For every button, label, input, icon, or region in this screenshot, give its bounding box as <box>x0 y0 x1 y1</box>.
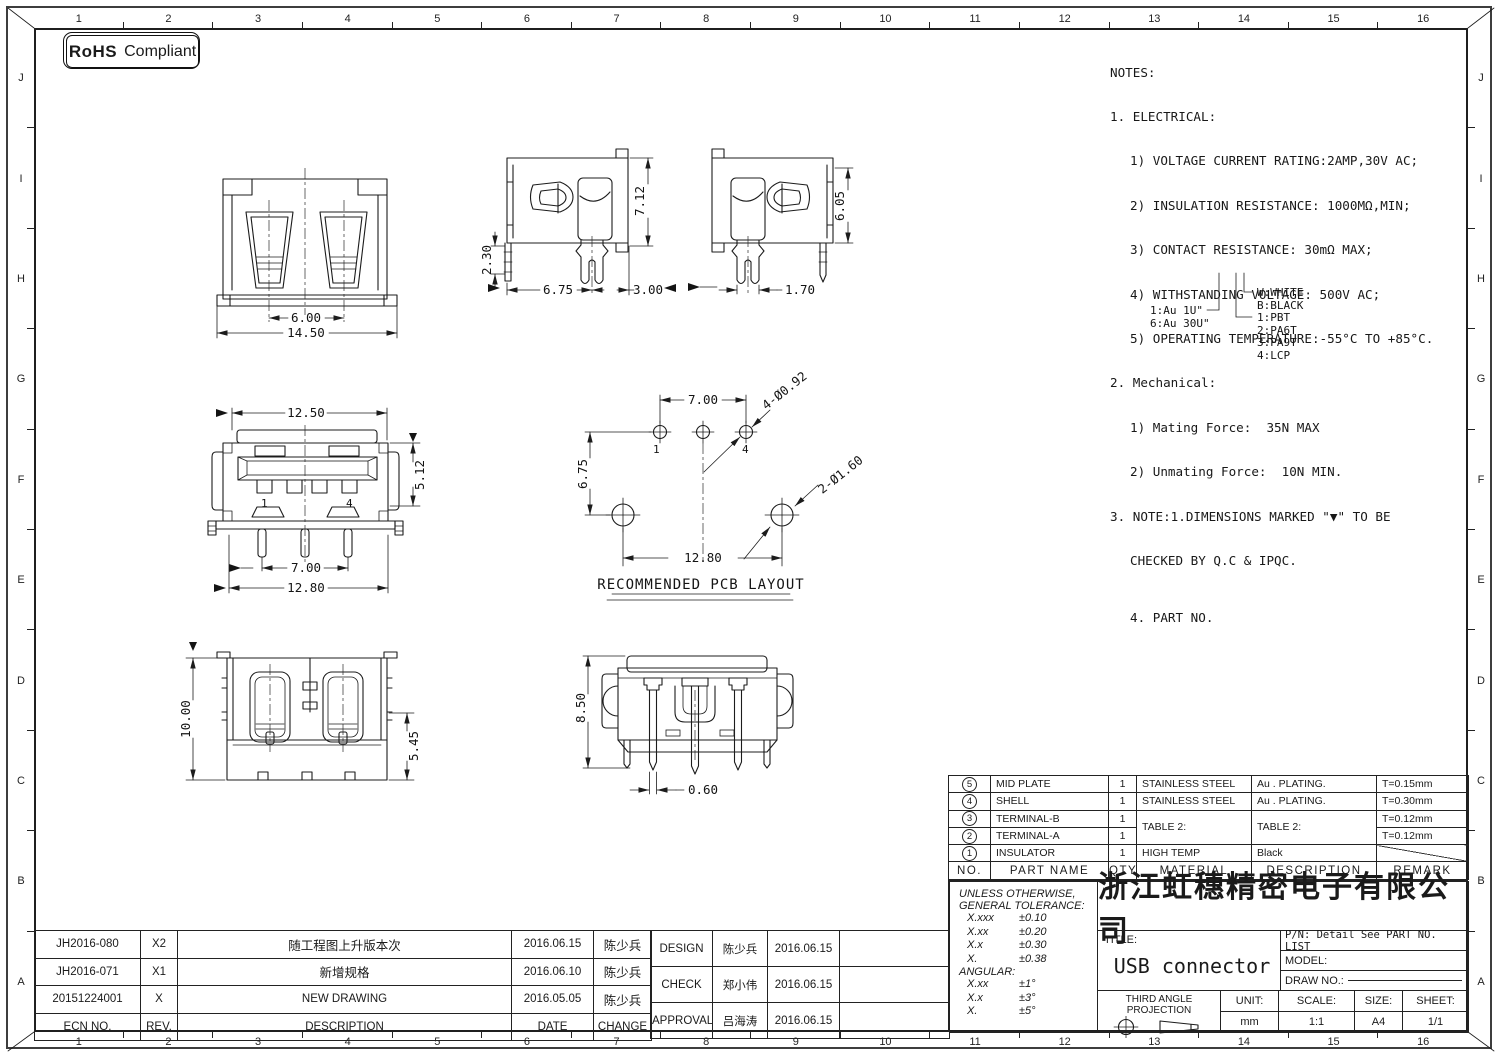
svg-text:2.30: 2.30 <box>479 245 494 275</box>
svg-text:4: 4 <box>346 497 353 510</box>
rev: X1 <box>141 958 178 986</box>
rev-description: 随工程图上升版本次 <box>178 931 512 959</box>
scale-label: SCALE: <box>1278 990 1355 1012</box>
view-side-a: 7.12 2.30 6.75 3.00 <box>479 149 676 297</box>
approval-role: DESIGN <box>651 931 713 967</box>
remark: T=0.12mm <box>1377 810 1469 827</box>
approval-date: 2016.06.15 <box>768 931 840 967</box>
tolerance-heading: UNLESS OTHERWISE, <box>959 888 1097 900</box>
revision-header-row: ECN NO. REV. DESCRIPTION DATE CHANGE <box>35 1013 652 1041</box>
svg-text:6.05: 6.05 <box>832 191 847 221</box>
approval-row: CHECK 郑小伟 2016.06.15 <box>651 967 950 1003</box>
view-top: 10.00 5.45 <box>178 642 421 780</box>
part-name: TERMINAL-B <box>991 810 1109 827</box>
approval-role: CHECK <box>651 967 713 1003</box>
projection-cell: THIRD ANGLE PROJECTION <box>1097 990 1221 1033</box>
col-date: DATE <box>512 1013 594 1041</box>
tolerance-heading: GENERAL TOLERANCE: <box>959 900 1097 912</box>
col-no: NO. <box>949 862 991 879</box>
part-number-note: P/N: Detail See PART NO. LIST <box>1280 930 1469 951</box>
ang-value: ±5° <box>1019 1005 1036 1019</box>
description-merged: TABLE 2: <box>1252 810 1377 845</box>
tolerance-box: UNLESS OTHERWISE, GENERAL TOLERANCE: X.x… <box>949 881 1098 1033</box>
part-name: INSULATOR <box>991 845 1109 862</box>
scale-value: 1:1 <box>1278 1011 1355 1033</box>
approval-name: 陈少兵 <box>713 931 768 967</box>
ang-label: X. <box>967 1005 1019 1019</box>
bom-row: 3 TERMINAL-B 1 TABLE 2: TABLE 2: T=0.12m… <box>949 810 1469 827</box>
tol-value: ±0.10 <box>1019 912 1046 926</box>
svg-text:1:Au 1U": 1:Au 1U" <box>1150 304 1203 317</box>
third-angle-projection-symbol <box>1104 1016 1214 1038</box>
approval-date: 2016.06.15 <box>768 1003 840 1039</box>
view-pcb-layout: 1 4 7.00 4-Ø0.92 6.75 2-Ø1.60 12.80 RECO… <box>575 368 866 600</box>
item-number-badge: 2 <box>962 829 977 844</box>
svg-text:14.50: 14.50 <box>287 325 325 340</box>
remark: T=0.30mm <box>1377 793 1469 810</box>
svg-text:6.00: 6.00 <box>291 310 321 325</box>
approval-blank <box>840 931 950 967</box>
svg-text:10.00: 10.00 <box>178 700 193 738</box>
svg-text:5.12: 5.12 <box>412 460 427 490</box>
rev-date: 2016.06.15 <box>512 931 594 959</box>
qty: 1 <box>1109 776 1137 793</box>
svg-text:0.60: 0.60 <box>688 782 718 797</box>
title-block: UNLESS OTHERWISE, GENERAL TOLERANCE: X.x… <box>948 880 1468 1032</box>
size-label: SIZE: <box>1354 990 1403 1012</box>
svg-text:12.50: 12.50 <box>287 405 325 420</box>
revision-row: 20151224001 X NEW DRAWING 2016.05.05 陈少兵 <box>35 986 652 1014</box>
view-front: 12.50 1 4 <box>208 405 427 595</box>
svg-text:7.12: 7.12 <box>632 186 647 216</box>
svg-text:12.80: 12.80 <box>287 580 325 595</box>
rev-date: 2016.06.10 <box>512 958 594 986</box>
svg-text:1: 1 <box>653 443 660 456</box>
ang-value: ±3° <box>1019 992 1036 1006</box>
svg-text:2-Ø1.60: 2-Ø1.60 <box>815 452 866 496</box>
part-name: MID PLATE <box>991 776 1109 793</box>
remark: T=0.15mm <box>1377 776 1469 793</box>
rev-description: NEW DRAWING <box>178 986 512 1014</box>
item-number-badge: 4 <box>962 794 977 809</box>
approval-row: DESIGN 陈少兵 2016.06.15 <box>651 931 950 967</box>
tol-label: X.x <box>967 939 1019 953</box>
tol-label: X. <box>967 953 1019 967</box>
tol-value: ±0.38 <box>1019 953 1046 967</box>
rev: X <box>141 986 178 1014</box>
tol-label: X.xxx <box>967 912 1019 926</box>
drawing-title: USB connector <box>1104 954 1280 978</box>
unit-label: UNIT: <box>1220 990 1279 1012</box>
tol-value: ±0.20 <box>1019 926 1046 940</box>
remark: T=0.12mm <box>1377 827 1469 844</box>
col-description: DESCRIPTION <box>178 1013 512 1041</box>
title-label: TITLE: <box>1104 934 1280 946</box>
ang-label: X.xx <box>967 978 1019 992</box>
material-merged: TABLE 2: <box>1137 810 1252 845</box>
svg-text:4:LCP: 4:LCP <box>1257 349 1290 362</box>
item-number-badge: 3 <box>962 811 977 826</box>
size-value: A4 <box>1354 1011 1403 1033</box>
ang-value: ±1° <box>1019 978 1036 992</box>
approval-row: APPROVAL 吕海涛 2016.06.15 <box>651 1003 950 1039</box>
tol-label: X.xx <box>967 926 1019 940</box>
svg-text:4: 4 <box>742 443 749 456</box>
rev-change: 陈少兵 <box>594 958 652 986</box>
col-ecn-no: ECN NO. <box>35 1013 141 1041</box>
qty: 1 <box>1109 793 1137 810</box>
qty: 1 <box>1109 827 1137 844</box>
description: Black <box>1252 845 1377 862</box>
part-number-tree: 1:Au 1U" 6:Au 30U" W:WHITE B:BLACK 1:PBT… <box>1150 273 1304 362</box>
ang-label: X.x <box>967 992 1019 1006</box>
rev-description: 新增规格 <box>178 958 512 986</box>
title-cell: TITLE: USB connector <box>1097 930 1281 991</box>
approval-blank <box>840 1003 950 1039</box>
approval-blank <box>840 967 950 1003</box>
sheet-label: SHEET: <box>1402 990 1469 1012</box>
revision-table: JH2016-080 X2 随工程图上升版本次 2016.06.15 陈少兵 J… <box>34 930 652 1041</box>
svg-text:5.45: 5.45 <box>406 731 421 761</box>
svg-text:6:Au 30U": 6:Au 30U" <box>1150 317 1210 330</box>
material: STAINLESS STEEL <box>1137 776 1252 793</box>
ecn-no: JH2016-080 <box>35 931 141 959</box>
svg-text:4-Ø0.92: 4-Ø0.92 <box>759 368 810 412</box>
draw-no-blank-line <box>1348 980 1462 981</box>
rev-change: 陈少兵 <box>594 931 652 959</box>
view-back: 6.00 14.50 <box>217 168 397 340</box>
remark-slash <box>1377 845 1469 862</box>
svg-text:3.00: 3.00 <box>633 282 663 297</box>
part-name: SHELL <box>991 793 1109 810</box>
draw-no-field: DRAW NO.: <box>1280 970 1469 991</box>
svg-text:1: 1 <box>261 497 268 510</box>
rev-change: 陈少兵 <box>594 986 652 1014</box>
svg-text:1:PBT: 1:PBT <box>1257 311 1290 324</box>
svg-text:7.00: 7.00 <box>291 560 321 575</box>
sheet-value: 1/1 <box>1402 1011 1469 1033</box>
col-part-name: PART NAME <box>991 862 1109 879</box>
approval-date: 2016.06.15 <box>768 967 840 1003</box>
view-rear: 8.50 0.60 <box>573 656 793 797</box>
angular-heading: ANGULAR: <box>959 966 1097 978</box>
approval-name: 吕海涛 <box>713 1003 768 1039</box>
view-side-b: 6.05 1.70 <box>688 149 853 297</box>
svg-text:12.80: 12.80 <box>684 550 722 565</box>
svg-text:8.50: 8.50 <box>573 693 588 723</box>
svg-text:W:WHITE: W:WHITE <box>1257 286 1303 299</box>
approval-name: 郑小伟 <box>713 967 768 1003</box>
bom-row: 1 INSULATOR 1 HIGH TEMP Black <box>949 845 1469 862</box>
drawing-sheet: 12345678910111213141516 1234567891011121… <box>0 0 1502 1059</box>
qty: 1 <box>1109 845 1137 862</box>
col-change: CHANGE <box>594 1013 652 1041</box>
company-name: 浙江虹穗精密电子有限公司 <box>1097 881 1469 931</box>
ecn-no: JH2016-071 <box>35 958 141 986</box>
item-number-badge: 1 <box>962 846 977 861</box>
rev-date: 2016.05.05 <box>512 986 594 1014</box>
revision-row: JH2016-080 X2 随工程图上升版本次 2016.06.15 陈少兵 <box>35 931 652 959</box>
revision-row: JH2016-071 X1 新增规格 2016.06.10 陈少兵 <box>35 958 652 986</box>
qty: 1 <box>1109 810 1137 827</box>
description: Au . PLATING. <box>1252 776 1377 793</box>
svg-text:RECOMMENDED PCB LAYOUT: RECOMMENDED PCB LAYOUT <box>597 577 804 593</box>
svg-text:3:PA9T: 3:PA9T <box>1257 336 1297 349</box>
svg-text:7.00: 7.00 <box>688 392 718 407</box>
svg-text:1.70: 1.70 <box>785 282 815 297</box>
description: Au . PLATING. <box>1252 793 1377 810</box>
bom-row: 4 SHELL 1 STAINLESS STEEL Au . PLATING. … <box>949 793 1469 810</box>
model-field: MODEL: <box>1280 950 1469 971</box>
item-number-badge: 5 <box>962 777 977 792</box>
rev: X2 <box>141 931 178 959</box>
ecn-no: 20151224001 <box>35 986 141 1014</box>
part-name: TERMINAL-A <box>991 827 1109 844</box>
unit-value: mm <box>1220 1011 1279 1033</box>
svg-text:6.75: 6.75 <box>575 459 590 489</box>
material: HIGH TEMP <box>1137 845 1252 862</box>
tol-value: ±0.30 <box>1019 939 1046 953</box>
material: STAINLESS STEEL <box>1137 793 1252 810</box>
approvals-table: DESIGN 陈少兵 2016.06.15 CHECK 郑小伟 2016.06.… <box>650 930 950 1039</box>
projection-label: THIRD ANGLE PROJECTION <box>1098 994 1220 1016</box>
svg-text:6.75: 6.75 <box>543 282 573 297</box>
approval-role: APPROVAL <box>651 1003 713 1039</box>
col-rev: REV. <box>141 1013 178 1041</box>
bom-row: 5 MID PLATE 1 STAINLESS STEEL Au . PLATI… <box>949 776 1469 793</box>
